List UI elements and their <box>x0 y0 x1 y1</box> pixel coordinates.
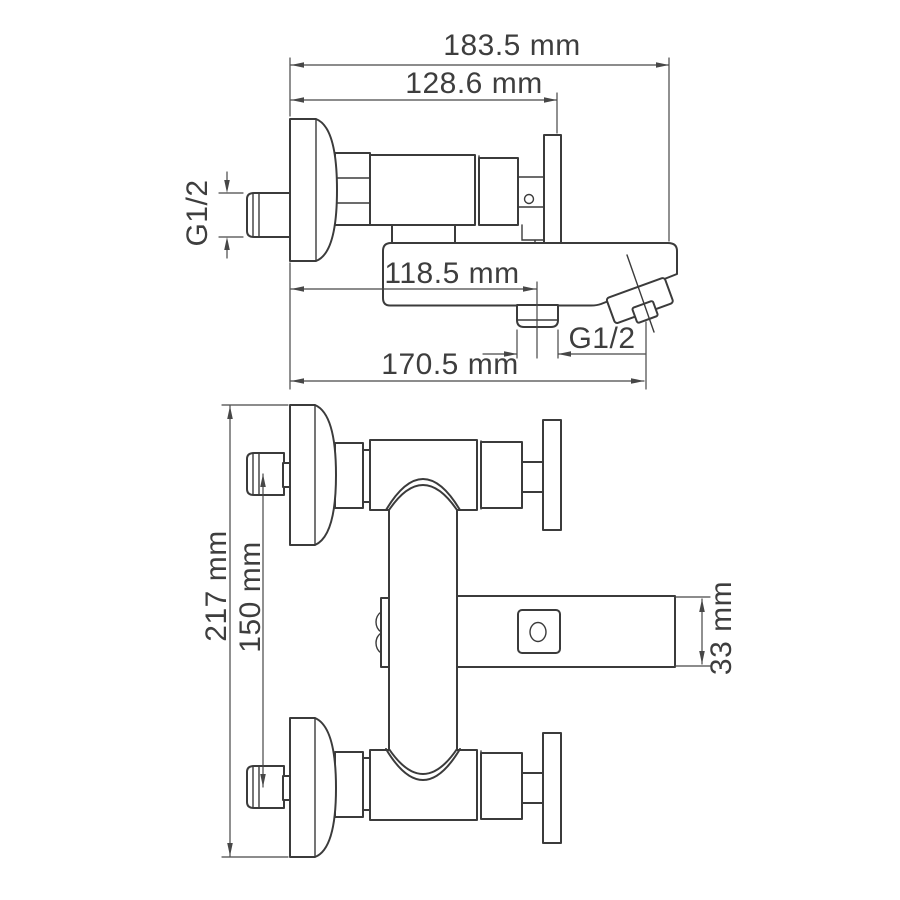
spout-front <box>457 596 675 667</box>
side-view <box>247 119 677 332</box>
hex-nut <box>335 153 370 225</box>
top-cartridge-section <box>481 442 522 508</box>
faucet-dimension-drawing: 183.5 mm 128.6 mm G1/2 118.5 mm G1/2 <box>0 0 900 900</box>
dim-reach-total-label: 170.5 mm <box>381 348 518 381</box>
cartridge-section <box>479 158 518 225</box>
mount-bracket <box>522 225 545 243</box>
dim-spout-height: 33 mm <box>675 581 738 675</box>
dim-inlet-spacing-label: 150 mm <box>234 541 267 652</box>
top-wall-flange <box>290 405 336 545</box>
bottom-right-connector <box>522 773 543 803</box>
bottom-valve-body <box>370 750 477 820</box>
bottom-wall-flange <box>290 718 336 857</box>
dim-inlet-thread-label: G1/2 <box>181 179 214 246</box>
body-underside-boss <box>392 225 455 243</box>
technical-drawing-page: 183.5 mm 128.6 mm G1/2 118.5 mm G1/2 <box>0 0 900 900</box>
wall-flange <box>290 119 337 261</box>
top-nipple-ring <box>363 450 370 502</box>
lever-handle <box>381 598 389 667</box>
diverter-button <box>518 610 560 653</box>
top-nipple <box>335 443 363 508</box>
dim-inlet-spacing: 150 mm <box>234 474 267 787</box>
valve-body <box>370 155 475 225</box>
top-right-connector <box>522 462 543 492</box>
dim-spout-height-label: 33 mm <box>705 581 738 675</box>
bottom-cartridge-section <box>481 753 522 819</box>
dim-overall-width-label: 183.5 mm <box>443 29 580 62</box>
dim-spout-reach: 118.5 mm <box>291 257 537 358</box>
bottom-right-wall-plate <box>543 733 561 843</box>
wall-plate <box>544 135 561 243</box>
dim-outlet-thread-label: G1/2 <box>568 322 635 355</box>
dim-width-to-wall-plate-label: 128.6 mm <box>405 67 542 100</box>
dim-inlet-thread: G1/2 <box>181 172 243 258</box>
bottom-nipple-ring <box>363 758 370 810</box>
front-view <box>247 405 675 857</box>
top-valve-body <box>370 440 477 510</box>
dim-height-total-label: 217 mm <box>200 530 233 641</box>
top-right-wall-plate <box>543 420 561 530</box>
riser-pipe-fill <box>390 508 456 751</box>
dim-width-to-wall-plate: 128.6 mm <box>291 67 557 133</box>
screw-hole <box>525 195 534 204</box>
dim-spout-reach-label: 118.5 mm <box>384 257 519 290</box>
bottom-nipple <box>335 752 363 817</box>
